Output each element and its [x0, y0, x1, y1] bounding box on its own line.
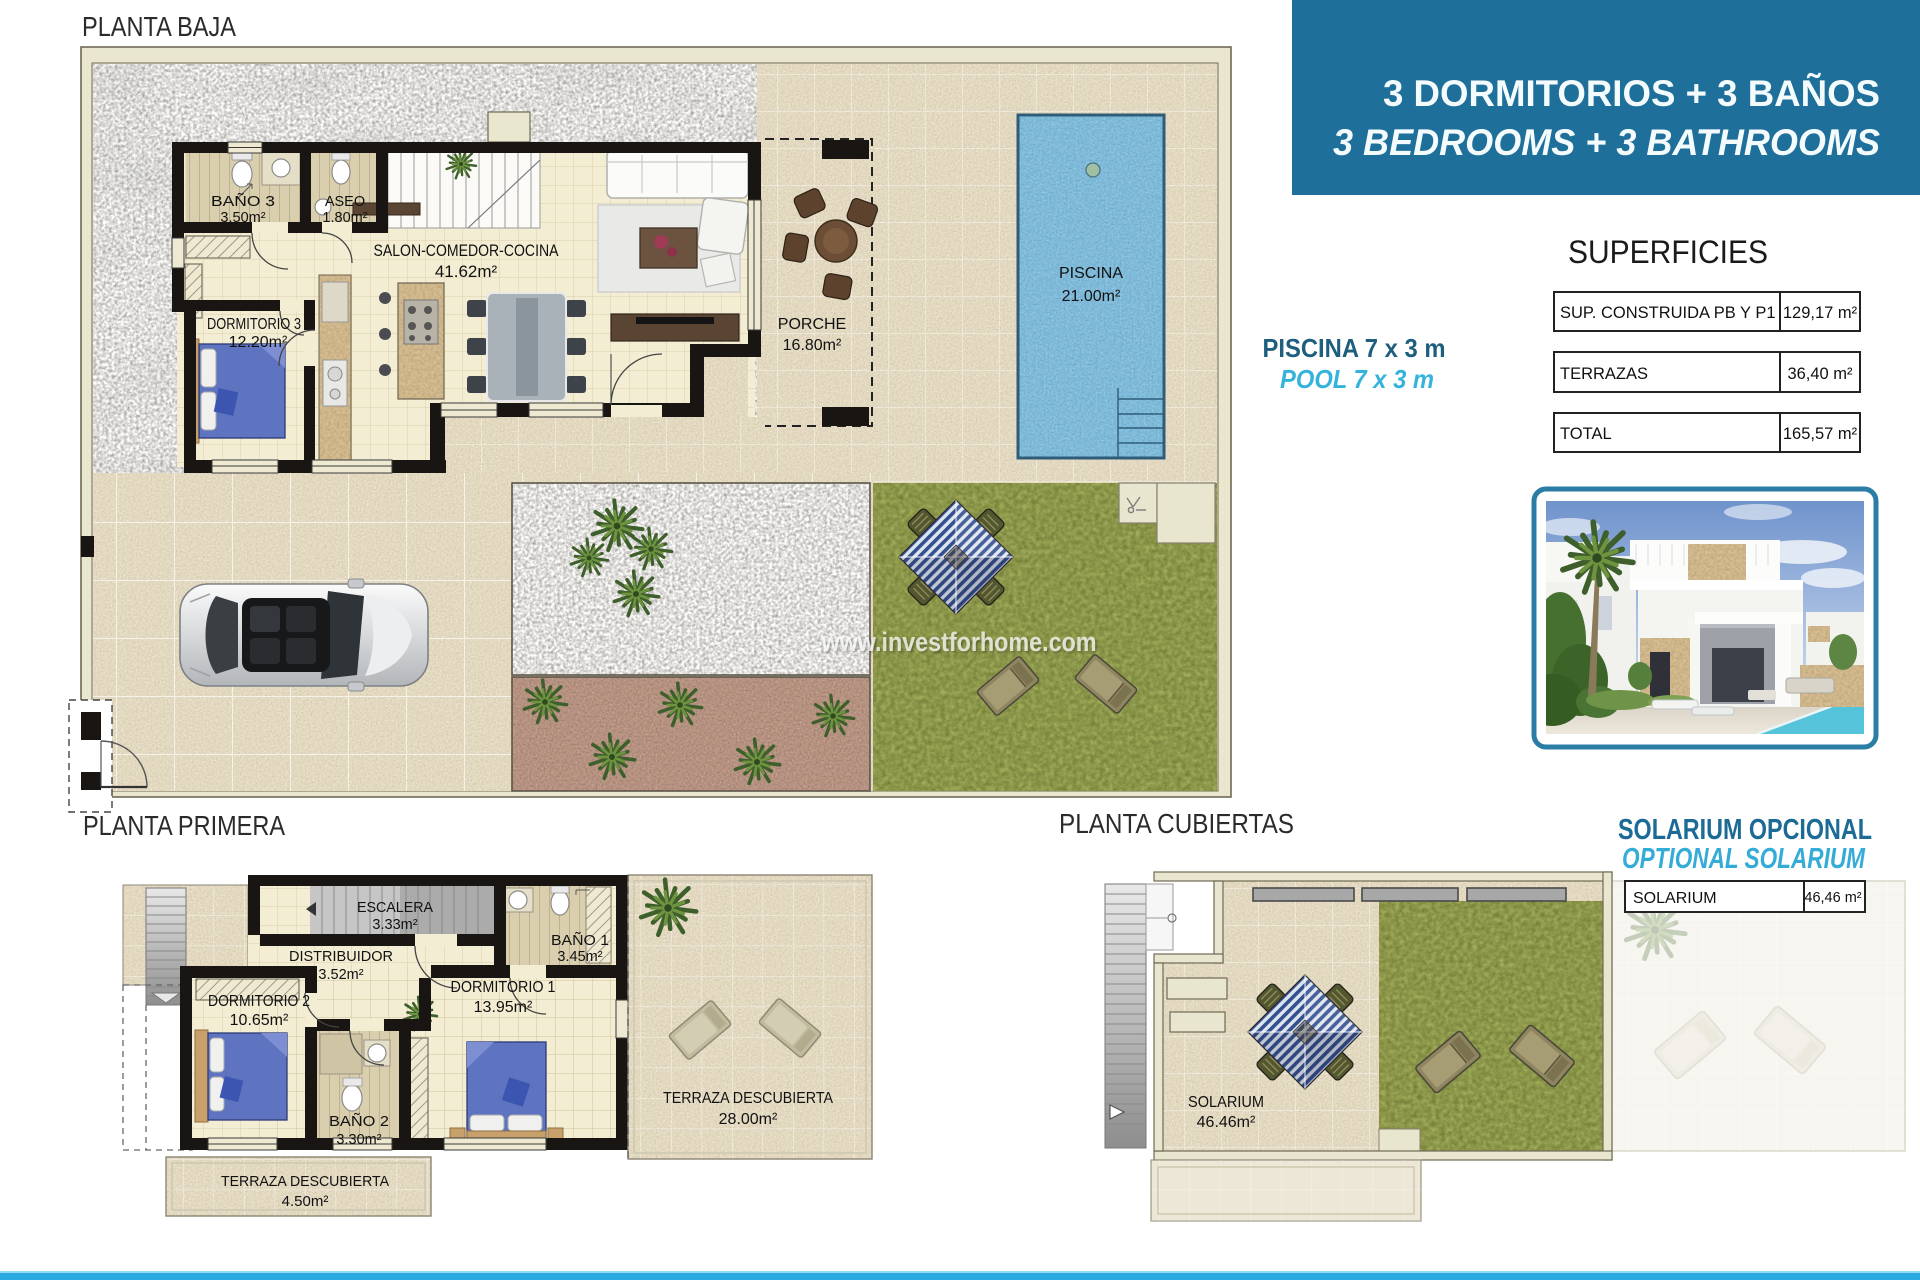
svg-text:36,40 m²: 36,40 m² — [1787, 365, 1853, 383]
svg-text:3.50m²: 3.50m² — [220, 210, 265, 226]
svg-text:12.20m²: 12.20m² — [229, 334, 288, 351]
svg-text:PORCHE: PORCHE — [778, 316, 846, 333]
svg-text:3.30m²: 3.30m² — [336, 1132, 381, 1148]
svg-text:165,57 m²: 165,57 m² — [1783, 425, 1858, 443]
svg-text:TERRAZAS: TERRAZAS — [1560, 365, 1648, 383]
svg-text:3.45m²: 3.45m² — [557, 949, 602, 965]
svg-text:SUP. CONSTRUIDA PB Y P1: SUP. CONSTRUIDA PB Y P1 — [1560, 304, 1776, 322]
svg-text:TERRAZA DESCUBIERTA: TERRAZA DESCUBIERTA — [663, 1090, 833, 1107]
svg-text:ASEO: ASEO — [325, 194, 365, 210]
svg-text:PISCINA 7 x 3 m: PISCINA 7 x 3 m — [1263, 333, 1446, 363]
svg-text:PLANTA CUBIERTAS: PLANTA CUBIERTAS — [1059, 808, 1294, 839]
svg-text:TERRAZA DESCUBIERTA: TERRAZA DESCUBIERTA — [221, 1173, 389, 1190]
svg-text:PLANTA PRIMERA: PLANTA PRIMERA — [83, 810, 285, 841]
svg-text:3 DORMITORIOS + 3 BAÑOS: 3 DORMITORIOS + 3 BAÑOS — [1383, 72, 1880, 114]
svg-text:www.investforhome.com: www.investforhome.com — [821, 627, 1097, 657]
svg-text:41.62m²: 41.62m² — [435, 262, 498, 281]
svg-text:BAÑO 3: BAÑO 3 — [211, 193, 275, 210]
svg-text:ESCALERA: ESCALERA — [357, 899, 433, 916]
svg-text:SUPERFICIES: SUPERFICIES — [1568, 234, 1768, 270]
svg-text:TOTAL: TOTAL — [1560, 425, 1612, 443]
svg-text:DORMITORIO 2: DORMITORIO 2 — [208, 993, 310, 1010]
svg-text:16.80m²: 16.80m² — [783, 337, 842, 354]
svg-text:46,46 m²: 46,46 m² — [1804, 890, 1861, 906]
svg-text:3.52m²: 3.52m² — [318, 967, 363, 983]
svg-text:1.80m²: 1.80m² — [322, 210, 367, 226]
svg-text:SOLARIUM: SOLARIUM — [1633, 890, 1717, 907]
svg-text:POOL 7 x 3 m: POOL 7 x 3 m — [1280, 364, 1434, 394]
svg-text:PISCINA: PISCINA — [1059, 265, 1123, 282]
svg-text:DORMITORIO 3: DORMITORIO 3 — [207, 316, 301, 333]
svg-text:46.46m²: 46.46m² — [1197, 1114, 1256, 1131]
svg-text:OPTIONAL SOLARIUM: OPTIONAL SOLARIUM — [1622, 843, 1866, 875]
svg-text:129,17 m²: 129,17 m² — [1783, 304, 1858, 322]
svg-text:SOLARIUM: SOLARIUM — [1188, 1094, 1264, 1111]
svg-text:DISTRIBUIDOR: DISTRIBUIDOR — [289, 948, 393, 965]
svg-text:SALON-COMEDOR-COCINA: SALON-COMEDOR-COCINA — [374, 241, 560, 260]
svg-text:4.50m²: 4.50m² — [282, 1193, 329, 1210]
svg-text:21.00m²: 21.00m² — [1062, 288, 1121, 305]
svg-text:10.65m²: 10.65m² — [230, 1012, 289, 1029]
svg-text:3.33m²: 3.33m² — [372, 917, 417, 933]
svg-text:SOLARIUM OPCIONAL: SOLARIUM OPCIONAL — [1618, 814, 1872, 846]
svg-text:28.00m²: 28.00m² — [719, 1111, 778, 1128]
svg-text:BAÑO 1: BAÑO 1 — [551, 932, 609, 949]
svg-text:BAÑO 2: BAÑO 2 — [329, 1113, 389, 1130]
svg-text:3 BEDROOMS + 3 BATHROOMS: 3 BEDROOMS + 3 BATHROOMS — [1333, 122, 1880, 163]
svg-text:DORMITORIO 1: DORMITORIO 1 — [451, 979, 556, 996]
svg-text:13.95m²: 13.95m² — [474, 999, 533, 1016]
svg-text:PLANTA BAJA: PLANTA BAJA — [82, 11, 236, 42]
